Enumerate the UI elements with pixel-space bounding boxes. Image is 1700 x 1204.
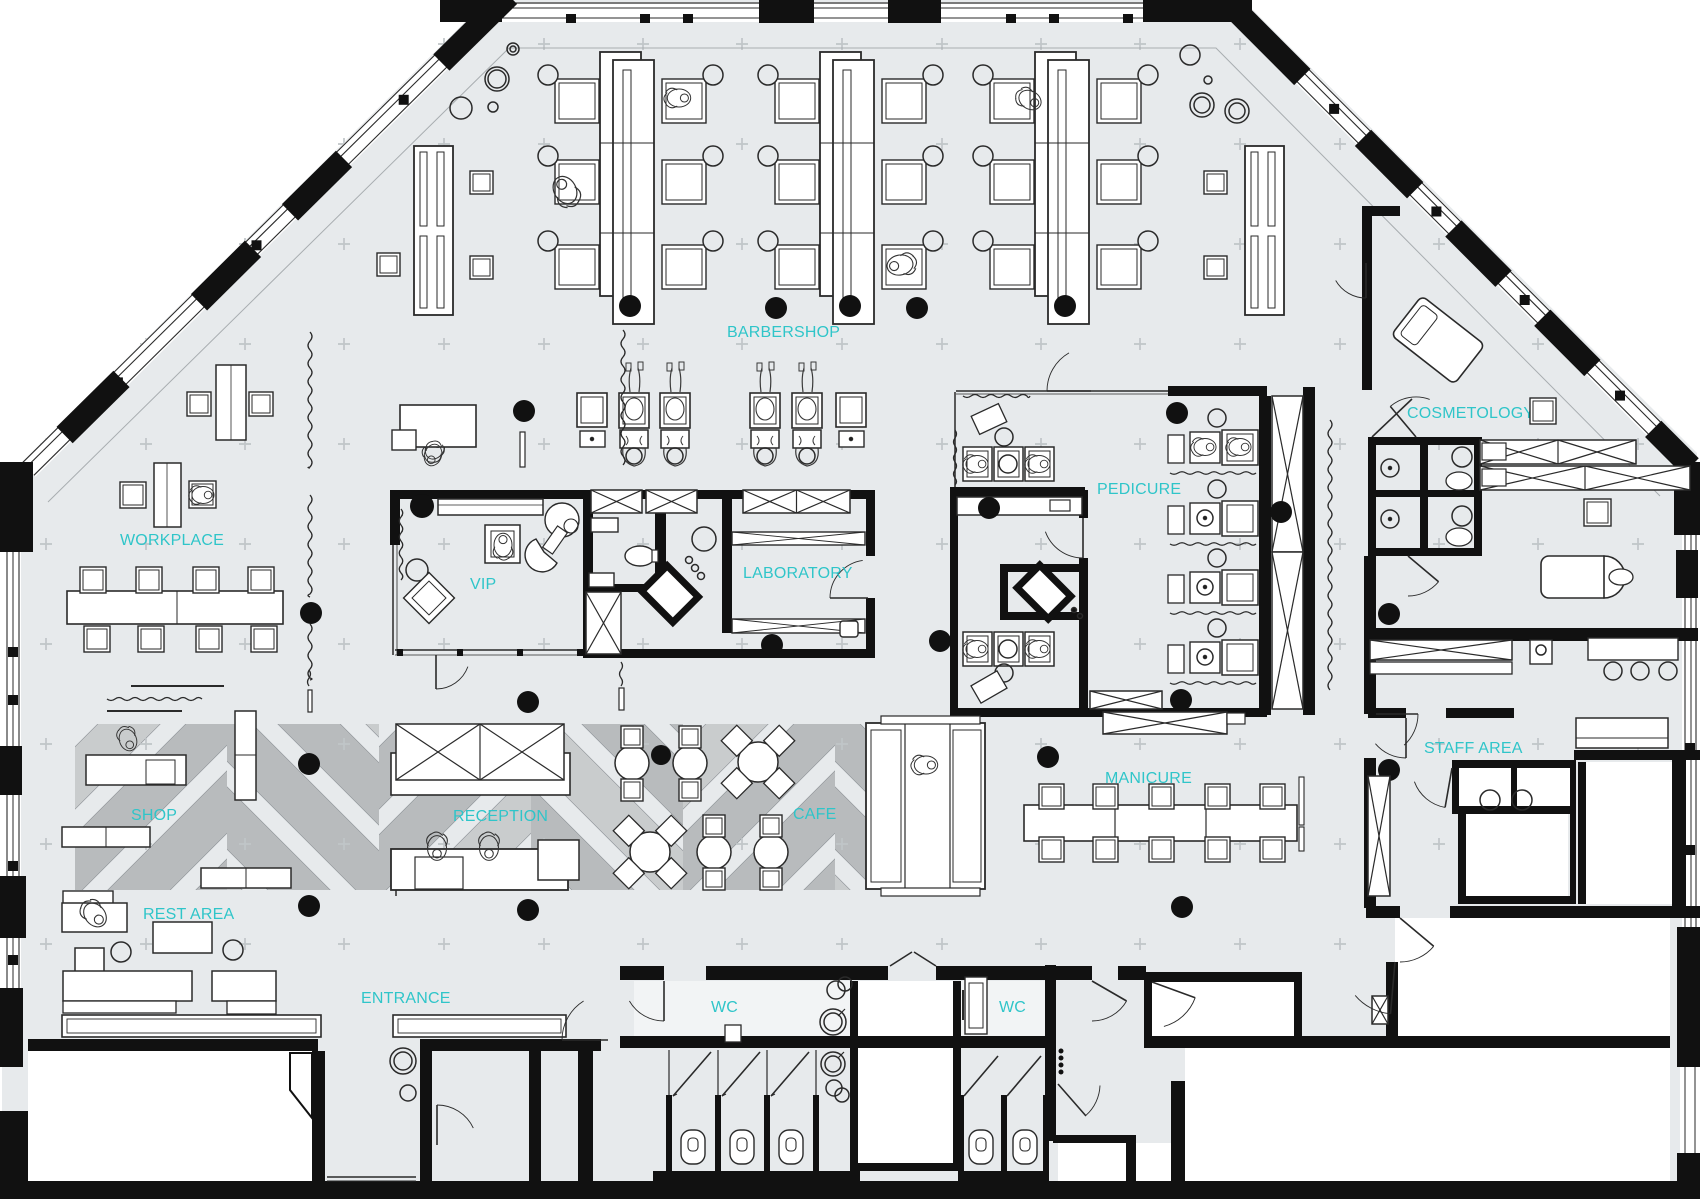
svg-text:CAFE: CAFE bbox=[793, 806, 836, 823]
svg-text:WORKPLACE: WORKPLACE bbox=[120, 532, 224, 549]
svg-text:STAFF AREA: STAFF AREA bbox=[1424, 740, 1523, 757]
svg-text:WC: WC bbox=[999, 999, 1026, 1016]
svg-text:REST AREA: REST AREA bbox=[143, 906, 234, 923]
svg-text:BARBERSHOP: BARBERSHOP bbox=[727, 324, 840, 341]
svg-text:MANICURE: MANICURE bbox=[1105, 770, 1192, 787]
svg-text:WC: WC bbox=[711, 999, 738, 1016]
svg-text:SHOP: SHOP bbox=[131, 807, 177, 824]
svg-text:VIP: VIP bbox=[470, 576, 496, 593]
svg-text:ENTRANCE: ENTRANCE bbox=[361, 990, 451, 1007]
svg-text:LABORATORY: LABORATORY bbox=[743, 565, 853, 582]
svg-text:RECEPTION: RECEPTION bbox=[453, 808, 548, 825]
svg-text:PEDICURE: PEDICURE bbox=[1097, 481, 1181, 498]
svg-text:COSMETOLOGY: COSMETOLOGY bbox=[1407, 405, 1534, 422]
